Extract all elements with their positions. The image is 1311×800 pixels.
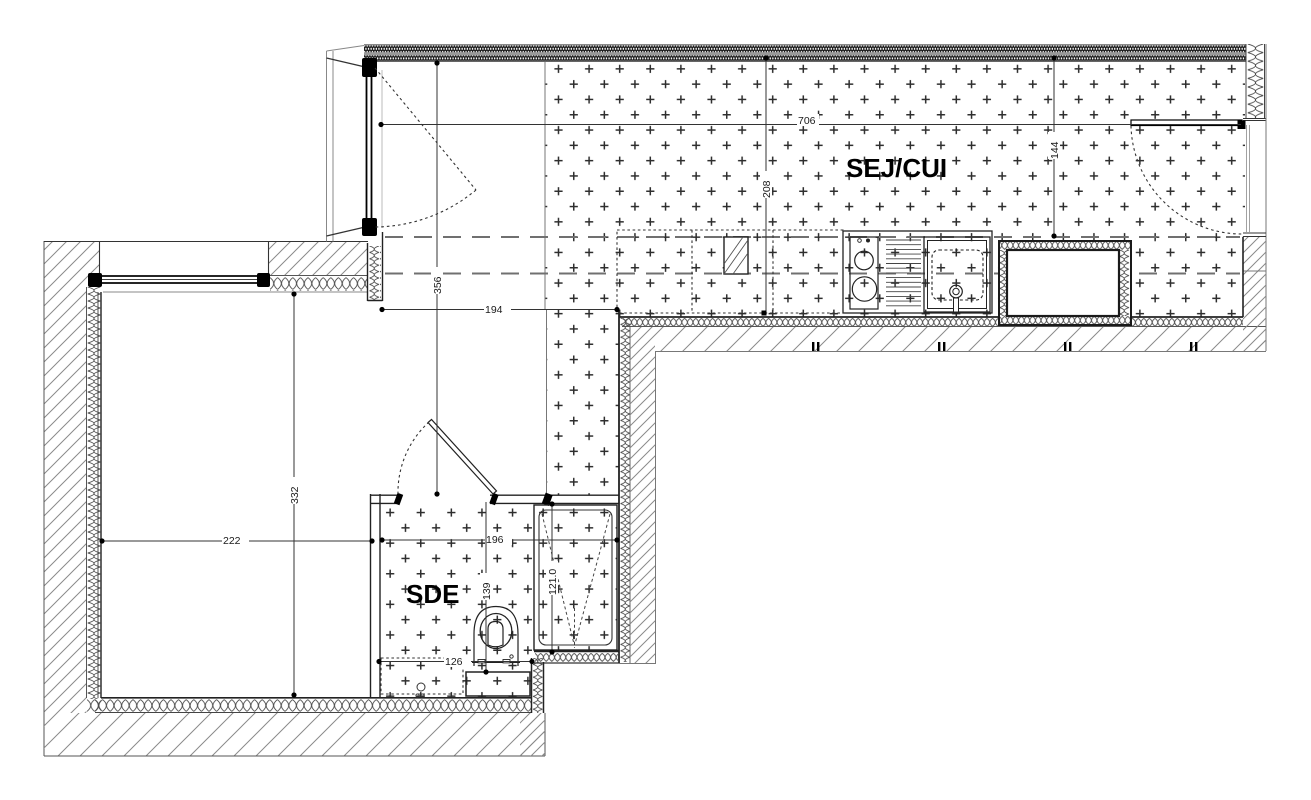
svg-text:121.0: 121.0 <box>547 569 559 595</box>
svg-text:706: 706 <box>798 115 816 127</box>
svg-text:SEJ/CUI: SEJ/CUI <box>846 153 947 183</box>
svg-text:SDE: SDE <box>406 579 459 609</box>
svg-text:222: 222 <box>223 535 241 547</box>
svg-text:208: 208 <box>761 180 773 198</box>
svg-text:196: 196 <box>486 534 504 546</box>
svg-text:332: 332 <box>289 486 301 504</box>
svg-text:356: 356 <box>432 276 444 294</box>
svg-text:139: 139 <box>481 582 493 600</box>
svg-text:126: 126 <box>445 656 463 668</box>
svg-text:144: 144 <box>1049 141 1061 159</box>
svg-text:194: 194 <box>485 304 503 316</box>
